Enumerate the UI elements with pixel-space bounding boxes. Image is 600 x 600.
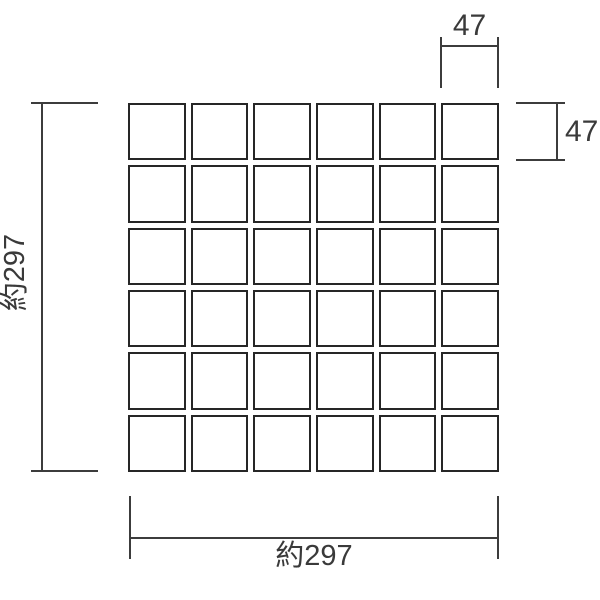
tile <box>191 228 249 285</box>
tile <box>379 352 437 409</box>
tile <box>441 165 499 222</box>
tile <box>191 352 249 409</box>
tile <box>253 103 311 160</box>
tile <box>253 290 311 347</box>
tile <box>128 290 186 347</box>
dimension-right-line <box>556 103 558 161</box>
tile <box>316 352 374 409</box>
tile <box>253 165 311 222</box>
dimension-right-tick-top <box>516 102 565 104</box>
dimension-left-tick-top <box>31 102 98 104</box>
tile <box>441 290 499 347</box>
tile <box>253 415 311 472</box>
dimension-bottom-line <box>129 537 499 539</box>
tile <box>128 228 186 285</box>
dimension-top-tick-left <box>440 37 442 88</box>
tile <box>128 415 186 472</box>
tile <box>379 415 437 472</box>
tile <box>191 103 249 160</box>
dimension-left-label-text: 約297 <box>2 234 31 311</box>
tile <box>379 103 437 160</box>
tile <box>441 415 499 472</box>
tile-dimension-diagram: 47 47 約297 約297 <box>0 0 600 600</box>
dimension-right-tick-bottom <box>516 159 565 161</box>
tile <box>128 165 186 222</box>
tile <box>128 352 186 409</box>
dimension-top-line <box>440 45 499 47</box>
tile <box>316 228 374 285</box>
tile <box>316 290 374 347</box>
tile <box>191 415 249 472</box>
tile <box>316 415 374 472</box>
dimension-bottom-label: 約297 <box>129 542 499 571</box>
tile <box>316 165 374 222</box>
tile <box>379 165 437 222</box>
tile <box>128 103 186 160</box>
dimension-left-label: 約297 <box>0 88 32 457</box>
tile <box>379 228 437 285</box>
tile <box>191 165 249 222</box>
dimension-top-label: 47 <box>440 11 499 41</box>
tile <box>379 290 437 347</box>
tile <box>441 228 499 285</box>
dimension-left-line <box>41 103 43 472</box>
tile <box>191 290 249 347</box>
dimension-left-tick-bottom <box>31 470 98 472</box>
mosaic-tile-grid <box>128 103 499 472</box>
dimension-right-label: 47 <box>565 103 598 161</box>
tile <box>253 352 311 409</box>
tile <box>441 352 499 409</box>
tile <box>316 103 374 160</box>
tile <box>253 228 311 285</box>
dimension-top-tick-right <box>497 37 499 88</box>
tile <box>441 103 499 160</box>
